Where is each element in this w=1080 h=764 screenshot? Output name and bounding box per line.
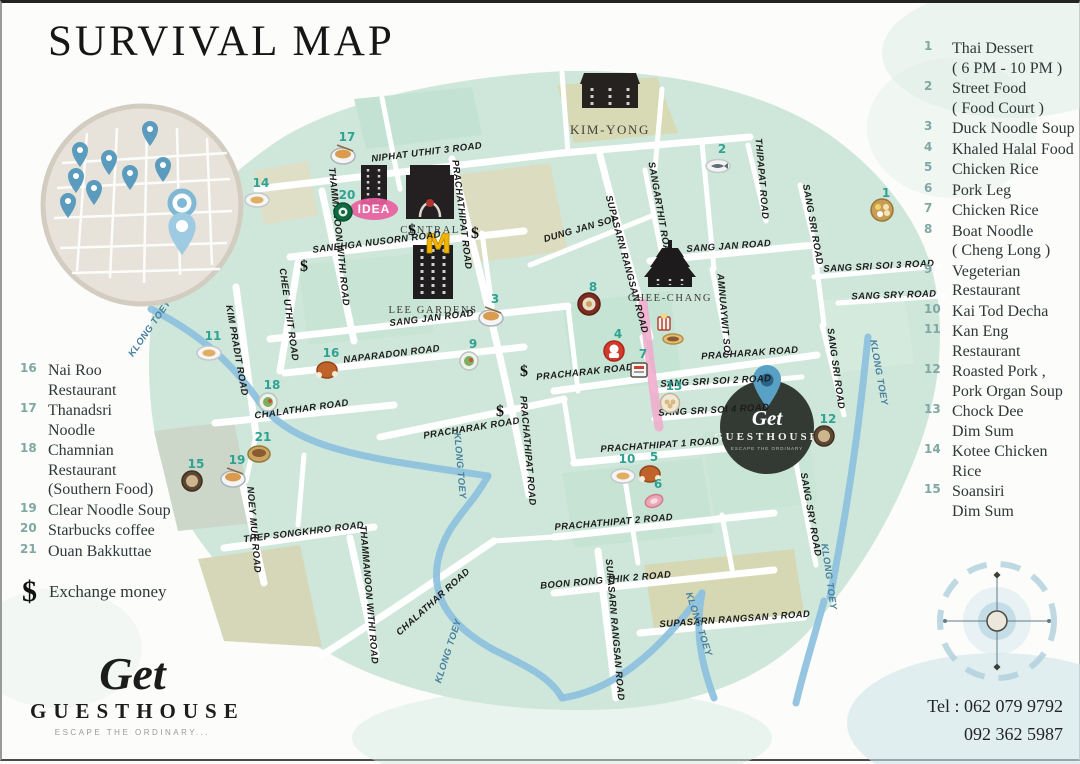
legend-item-text: Kai Tod Decha — [952, 302, 1048, 322]
minimap-inset — [43, 106, 241, 304]
legend-item-number: 17 — [20, 401, 41, 440]
exchange-dollar-mark: $ — [408, 222, 416, 239]
legend-item-number: 20 — [20, 521, 41, 541]
legend-item-text: Kotee Chicken Rice — [952, 442, 1048, 481]
legend-item-text: Khaled Halal Food — [952, 140, 1074, 160]
kim-yong-label: KIM-YONG — [570, 122, 650, 137]
legend-item-number: 7 — [924, 201, 945, 221]
svg-text:16: 16 — [323, 346, 340, 360]
svg-text:7: 7 — [639, 347, 647, 361]
legend-item: 15Soansiri Dim Sum — [924, 482, 1080, 521]
legend-item-text: Duck Noodle Soup — [952, 119, 1075, 139]
legend-item-text: Boat Noodle ( Cheng Long ) — [952, 222, 1050, 261]
legend-item-number: 12 — [924, 362, 945, 401]
svg-text:18: 18 — [264, 378, 281, 392]
legend-item: 2Street Food ( Food Court ) — [924, 79, 1080, 118]
legend-item: 13Chock Dee Dim Sum — [924, 402, 1080, 441]
legend-item-text: Pork Leg — [952, 181, 1011, 201]
svg-text:10: 10 — [619, 452, 636, 466]
legend-item-number: 15 — [924, 482, 945, 521]
legend-item: 11Kan Eng Restaurant — [924, 322, 1080, 361]
legend-item: 3Duck Noodle Soup — [924, 119, 1080, 139]
svg-text:14: 14 — [253, 176, 270, 190]
guesthouse-name: GUESTHOUSE — [714, 431, 820, 443]
legend-item-number: 6 — [924, 181, 945, 201]
legend-item-number: 4 — [924, 140, 945, 160]
legend-item: 21Ouan Bakkuttae — [20, 542, 195, 562]
legend-item: 7Chicken Rice — [924, 201, 1080, 221]
exchange-money-key: $ Exchange money — [22, 575, 167, 609]
legend-item-number: 19 — [20, 501, 41, 521]
legend-item: 9Vegeterian Restaurant — [924, 262, 1080, 301]
svg-text:17: 17 — [339, 130, 356, 144]
svg-text:6: 6 — [654, 477, 662, 491]
legend-item: 14Kotee Chicken Rice — [924, 442, 1080, 481]
legend-item-number: 5 — [924, 160, 945, 180]
legend-item: 4Khaled Halal Food — [924, 140, 1080, 160]
legend-item: 19Clear Noodle Soup — [20, 501, 195, 521]
svg-text:1: 1 — [882, 186, 890, 200]
legend-item-text: Clear Noodle Soup — [48, 501, 171, 521]
exchange-dollar-mark: $ — [300, 258, 308, 275]
legend-item-number: 1 — [924, 39, 945, 78]
svg-text:13: 13 — [666, 379, 683, 393]
idea-label: IDEA — [358, 202, 391, 216]
legend-item-text: Chock Dee Dim Sum — [952, 402, 1024, 441]
legend-item-text: Vegeterian Restaurant — [952, 262, 1020, 301]
svg-text:2: 2 — [718, 142, 726, 156]
svg-text:11: 11 — [205, 329, 222, 343]
legend-item: 16Nai Roo Restaurant — [20, 361, 195, 400]
legend-item-number: 14 — [924, 442, 945, 481]
page-title: SURVIVAL MAP — [48, 17, 395, 66]
landmark-kim-yong-market: KIM-YONG — [570, 73, 650, 137]
contact-phone-block: Tel : 062 079 9792 092 362 5987 — [927, 693, 1063, 749]
dollar-icon: $ — [22, 575, 37, 609]
legend-item-number: 11 — [924, 322, 945, 361]
exchange-dollar-mark: $ — [471, 225, 479, 242]
logo-script: Get — [30, 651, 235, 697]
svg-text:9: 9 — [469, 337, 477, 351]
guesthouse-tagline: ESCAPE THE ORDINARY — [731, 446, 803, 451]
legend-item: 20Starbucks coffee — [20, 521, 195, 541]
legend-right-column: 1Thai Dessert ( 6 PM - 10 PM )2Street Fo… — [924, 39, 1080, 522]
legend-item-number: 8 — [924, 222, 945, 261]
legend-item-number: 16 — [20, 361, 41, 400]
legend-item: 1Thai Dessert ( 6 PM - 10 PM ) — [924, 39, 1080, 78]
svg-text:3: 3 — [491, 292, 499, 306]
svg-text:5: 5 — [650, 450, 658, 464]
food-marker-sandwich-icon — [663, 334, 683, 344]
logo-tagline: ESCAPE THE ORDINARY... — [30, 728, 235, 737]
legend-item: 17Thanadsri Noodle — [20, 401, 195, 440]
legend-item-text: Starbucks coffee — [48, 521, 155, 541]
legend-item-text: Ouan Bakkuttae — [48, 542, 152, 562]
legend-item: 10Kai Tod Decha — [924, 302, 1080, 322]
legend-item-number: 10 — [924, 302, 945, 322]
exchange-label: Exchange money — [49, 582, 167, 602]
exchange-dollar-mark: $ — [496, 403, 504, 420]
phone-line-2: 092 362 5987 — [927, 721, 1063, 749]
legend-left-column: 16Nai Roo Restaurant17Thanadsri Noodle18… — [20, 361, 195, 562]
guesthouse-logo: Get GUESTHOUSE ESCAPE THE ORDINARY... — [30, 651, 235, 737]
legend-item-text: Chicken Rice — [952, 201, 1039, 221]
legend-item-number: 3 — [924, 119, 945, 139]
legend-item-number: 21 — [20, 542, 41, 562]
survival-map-page: { "title": "SURVIVAL MAP", "legend_right… — [0, 0, 1080, 761]
legend-item-text: Roasted Pork , Pork Organ Soup — [952, 362, 1063, 401]
legend-item-text: Thai Dessert ( 6 PM - 10 PM ) — [952, 39, 1062, 78]
legend-item: 5Chicken Rice — [924, 160, 1080, 180]
svg-text:19: 19 — [229, 453, 246, 467]
legend-item: 12Roasted Pork , Pork Organ Soup — [924, 362, 1080, 401]
legend-item-text: Thanadsri Noodle — [48, 401, 112, 440]
legend-item-text: Street Food ( Food Court ) — [952, 79, 1044, 118]
legend-item-text: Chamnian Restaurant (Southern Food) — [48, 441, 153, 500]
phone-line-1: Tel : 062 079 9792 — [927, 693, 1063, 721]
legend-item-number: 9 — [924, 262, 945, 301]
legend-item-text: Soansiri Dim Sum — [952, 482, 1014, 521]
legend-item-text: Chicken Rice — [952, 160, 1039, 180]
legend-item-text: Nai Roo Restaurant — [48, 361, 116, 400]
legend-item-number: 18 — [20, 441, 41, 500]
svg-text:20: 20 — [339, 188, 356, 202]
svg-text:4: 4 — [614, 327, 622, 341]
svg-text:8: 8 — [589, 280, 597, 294]
exchange-dollar-mark: $ — [520, 363, 528, 380]
legend-item: 6Pork Leg — [924, 181, 1080, 201]
legend-item-number: 13 — [924, 402, 945, 441]
logo-name: GUESTHOUSE — [30, 699, 235, 724]
legend-item: 8Boat Noodle ( Cheng Long ) — [924, 222, 1080, 261]
legend-item-text: Kan Eng Restaurant — [952, 322, 1020, 361]
legend-item: 18Chamnian Restaurant (Southern Food) — [20, 441, 195, 500]
legend-item-number: 2 — [924, 79, 945, 118]
svg-text:21: 21 — [255, 430, 272, 444]
svg-text:12: 12 — [820, 412, 837, 426]
